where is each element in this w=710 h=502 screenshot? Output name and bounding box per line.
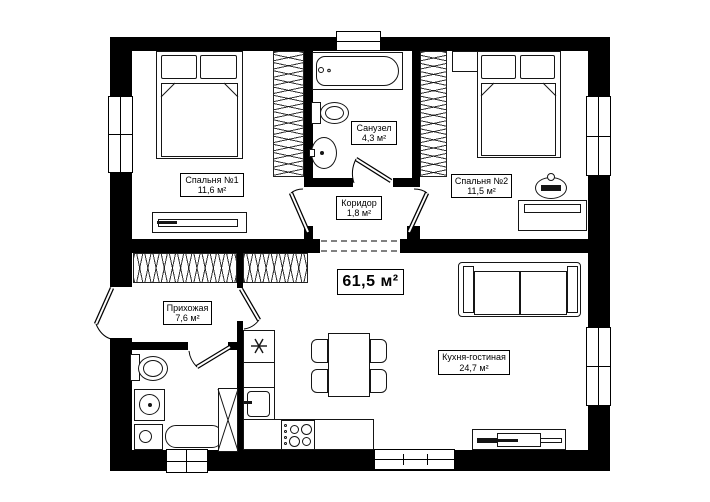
wall-corridor-post-left	[304, 226, 313, 240]
window-mullion	[167, 461, 207, 462]
wardrobe-bedroom2	[420, 51, 447, 177]
bed-bedroom2-pillow	[520, 55, 555, 79]
door-leaf-hallway-kitchen	[241, 289, 259, 329]
door-leaf-bath2	[189, 347, 230, 367]
window-mullion	[587, 136, 610, 137]
wall-right-3	[588, 406, 610, 471]
wall-left-1	[110, 37, 132, 96]
window-mullion	[375, 459, 454, 460]
window-mullion	[186, 450, 187, 472]
room-label-kitchen: Кухня-гостиная 24,7 м²	[438, 350, 510, 375]
room-area: 4,3 м²	[362, 133, 386, 143]
stove-burner	[289, 436, 300, 447]
sofa-armrest	[567, 266, 578, 313]
sink-bathroom-drain	[320, 151, 324, 155]
window-mullion	[109, 134, 132, 135]
wall-left-3	[110, 338, 132, 470]
room-area: 1,8 м²	[347, 208, 371, 218]
bed-bedroom2-blanket	[481, 83, 556, 156]
room-label-corridor: Коридор 1,8 м²	[336, 196, 382, 220]
room-area: 7,6 м²	[175, 313, 199, 323]
tv-screen-dark	[478, 439, 518, 442]
sofa-cushion	[520, 271, 567, 315]
stove-knob	[284, 436, 287, 439]
bed-bedroom2-pillow	[481, 55, 516, 79]
stove-knob	[284, 430, 287, 433]
room-name: Прихожая	[167, 303, 209, 313]
window-mullion	[427, 454, 428, 465]
room-label-hallway: Прихожая 7,6 м²	[163, 301, 212, 325]
window-kitchen-bottom	[374, 449, 455, 470]
room-name: Спальня №2	[455, 176, 508, 186]
bathtub-inner	[316, 56, 399, 86]
dining-table	[328, 333, 370, 397]
kitchen-counter-mid	[243, 362, 275, 388]
sofa-cushion	[474, 271, 520, 315]
desk-bedroom2-inner	[524, 204, 581, 213]
kitchen-sink-faucet	[243, 401, 252, 404]
kitchen-counter-top	[243, 330, 275, 363]
window-bedroom1-left	[108, 96, 133, 173]
total-area-value: 61,5 м²	[342, 273, 398, 291]
window-mullion	[337, 41, 380, 42]
room-name: Коридор	[341, 198, 377, 208]
door-leaf-bathroom	[352, 159, 391, 183]
wardrobe-kitchen	[243, 253, 308, 283]
wall-bathroom-right	[412, 51, 420, 187]
washing-machine-dot	[148, 403, 152, 407]
room-name: Санузел	[356, 123, 391, 133]
wall-corridor-post-right	[407, 226, 420, 240]
window-bath2-bottom	[166, 449, 208, 473]
window-mullion	[403, 454, 404, 465]
window-bedroom2-right	[586, 96, 611, 176]
wall-right-1	[588, 37, 610, 96]
wall-middle-right	[400, 239, 588, 253]
stove-burner	[301, 424, 312, 435]
bed-bedroom1-pillow	[161, 55, 197, 79]
total-area-label: 61,5 м²	[337, 269, 404, 295]
window-mullion	[587, 366, 610, 367]
wall-left-2	[110, 173, 132, 287]
stove-burner	[302, 437, 311, 446]
cabinet-bath2-knob	[139, 430, 152, 443]
room-label-bedroom2: Спальня №2 11,5 м²	[451, 174, 512, 198]
window-bathroom-top	[336, 31, 381, 51]
stove-burner	[290, 425, 299, 434]
dresser-bedroom1-handle	[157, 221, 177, 224]
toilet-bowl-inner	[325, 106, 344, 120]
bed-bedroom1-pillow	[200, 55, 237, 79]
bed-bedroom1-blanket	[161, 83, 238, 157]
wall-bathroom-bottom-left	[304, 178, 353, 187]
toilet2-bowl-inner	[143, 360, 163, 377]
sink-bathroom-faucet	[309, 149, 315, 157]
desk-chair-bedroom2-back	[541, 185, 561, 191]
wall-bath2-top-left	[131, 342, 188, 350]
wall-bathroom-bottom-right	[393, 178, 420, 187]
wall-middle-left	[131, 239, 320, 253]
room-area: 24,7 м²	[459, 363, 488, 373]
room-label-bedroom1: Спальня №1 11,6 м²	[180, 173, 244, 197]
dining-chair	[311, 369, 328, 393]
room-name: Спальня №1	[185, 175, 238, 185]
bathtub2	[165, 425, 223, 448]
ventilation-shaft	[218, 388, 238, 452]
window-kitchen-right	[586, 327, 611, 406]
sofa-armrest	[463, 266, 474, 313]
dining-chair	[370, 369, 387, 393]
window-entrance-opening	[109, 288, 132, 338]
room-area: 11,6 м²	[198, 185, 227, 195]
open-passage-dashed	[321, 241, 399, 251]
room-name: Кухня-гостиная	[442, 352, 506, 362]
stove-knob	[284, 442, 287, 445]
floor-plan: Спальня №1 11,6 м² Санузел 4,3 м² Спальн…	[0, 0, 710, 502]
dining-chair	[370, 339, 387, 363]
wall-bath2-top-right	[228, 342, 243, 350]
wardrobe-bedroom1	[273, 51, 304, 177]
dining-chair	[311, 339, 328, 363]
wall-right-2	[588, 176, 610, 327]
kitchen-sink-basin	[247, 391, 270, 417]
desk-chair-bedroom2-knob	[547, 173, 555, 181]
wardrobe-hallway	[133, 253, 237, 283]
stove-knob	[284, 424, 287, 427]
room-area: 11,5 м²	[467, 186, 496, 196]
nightstand-bedroom2	[452, 51, 478, 72]
room-label-bathroom: Санузел 4,3 м²	[351, 121, 397, 145]
